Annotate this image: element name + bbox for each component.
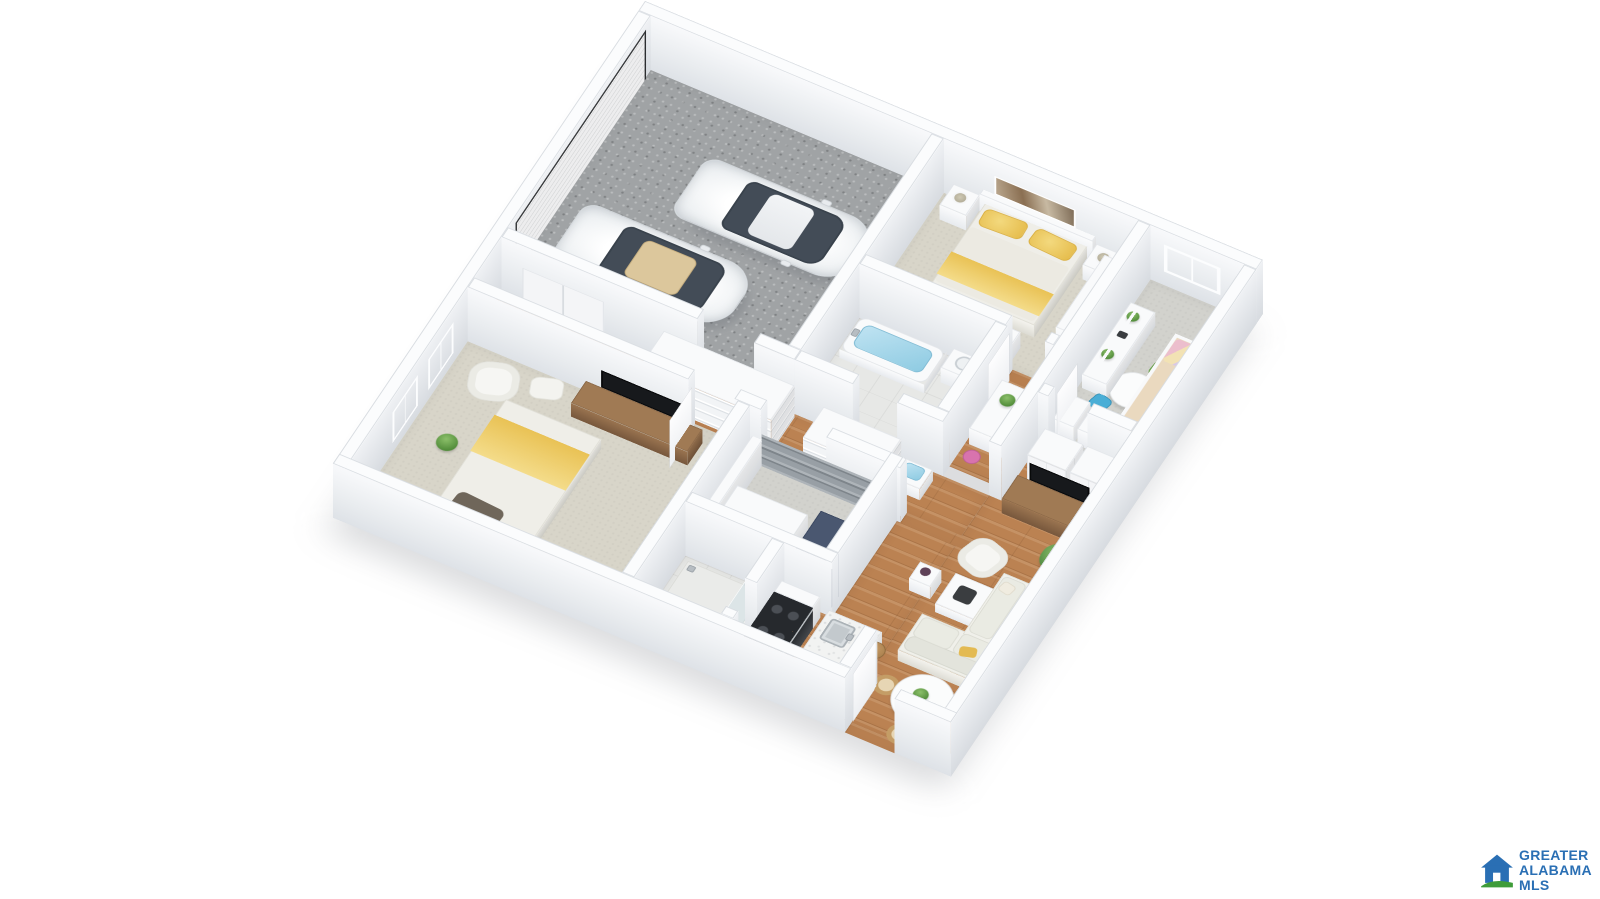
mls-line2: ALABAMA	[1519, 863, 1592, 878]
page: { "watermark": { "line1": "GREATER", "li…	[0, 0, 1600, 899]
mls-watermark: GREATER ALABAMA MLS	[1480, 848, 1592, 894]
wall-face	[832, 553, 839, 617]
mls-line1: GREATER	[1519, 848, 1592, 863]
mls-house-icon	[1480, 848, 1514, 894]
wall-face	[989, 441, 1001, 500]
wall-face	[943, 412, 950, 476]
wall-face	[900, 459, 907, 523]
roof	[1481, 855, 1513, 868]
mls-wordmark: GREATER ALABAMA MLS	[1519, 848, 1592, 893]
ottoman	[528, 376, 566, 402]
wall-face	[1256, 260, 1263, 324]
mls-line3: MLS	[1519, 878, 1592, 893]
floorplan-3d-render	[0, 0, 1600, 899]
